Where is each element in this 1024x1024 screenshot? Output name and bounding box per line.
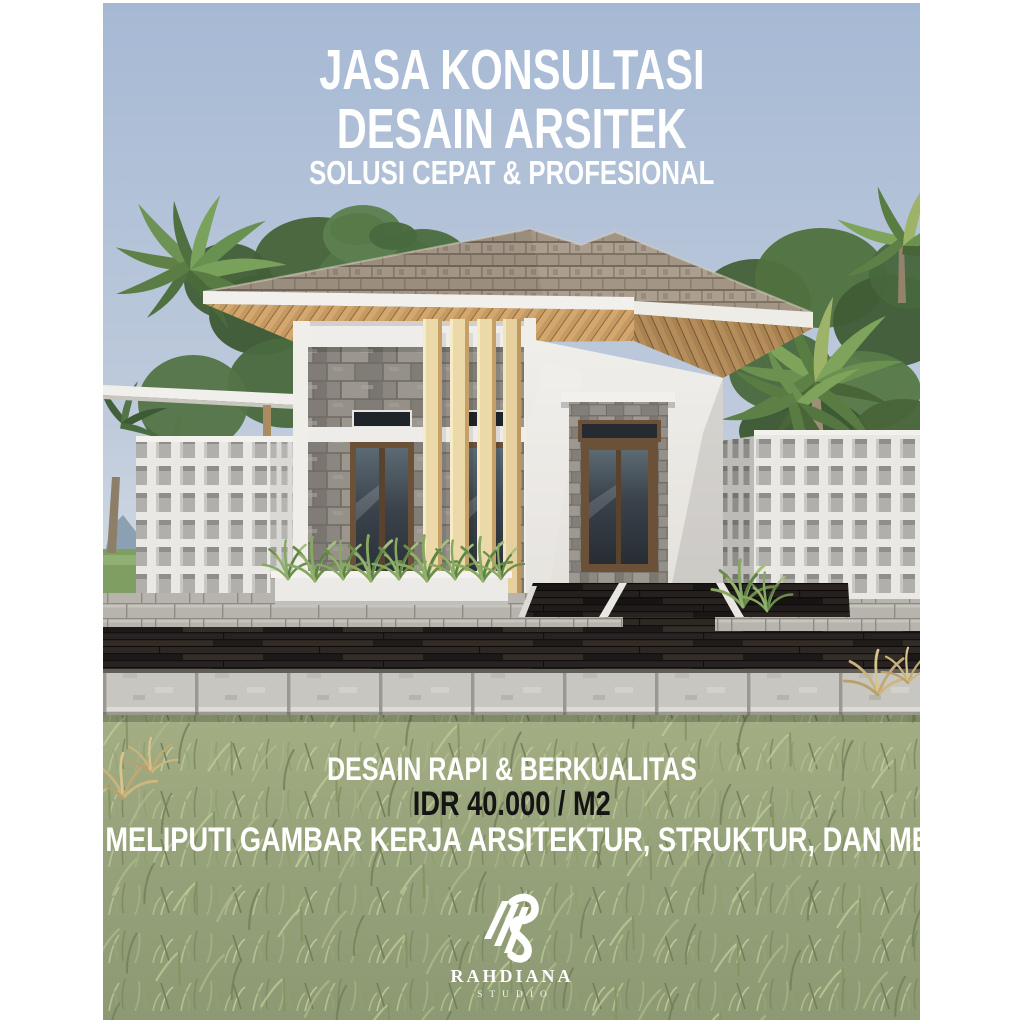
house [203,229,813,600]
brand-name: RAHDIANA [0,966,1024,987]
breeze-block-fence-left [136,436,295,593]
headline-subtitle: SOLUSI CEPAT & PROFESIONAL [0,156,1024,189]
brand-subname: STUDIO [0,990,1024,1000]
paver-walkway [103,673,920,717]
headline-line1: JASA KONSULTASI [0,42,1024,99]
entry-door [561,392,675,598]
headline-line2: DESAIN ARSITEK [0,101,1024,158]
footer-tagline: DESAIN RAPI & BERKUALITAS [0,753,1024,785]
footer-price: IDR 40.000 / M2 [0,787,1024,821]
footer-scope: MELIPUTI GAMBAR KERJA ARSITEKTUR, STRUKT… [0,823,1024,857]
door-canopy [561,392,675,402]
planter-box [271,571,512,605]
rahdiana-r-monogram-icon [481,889,543,963]
poster-canvas: JASA KONSULTASI DESAIN ARSITEK SOLUSI CE… [0,0,1024,1024]
brand-logo: RAHDIANA STUDIO [0,889,1024,1000]
entry-walkway [518,583,850,617]
